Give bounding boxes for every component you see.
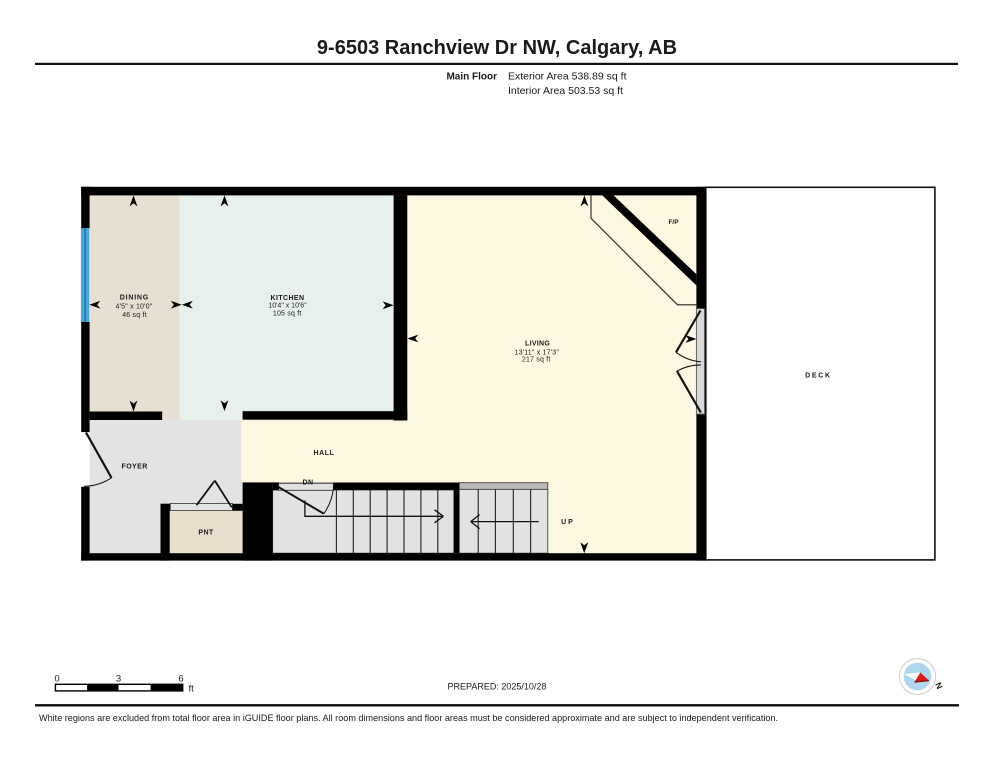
svg-text:46 sq ft: 46 sq ft bbox=[122, 312, 147, 319]
svg-text:DN: DN bbox=[302, 479, 313, 486]
svg-text:4'5" x 10'0": 4'5" x 10'0" bbox=[116, 303, 153, 310]
svg-text:KITCHEN: KITCHEN bbox=[271, 295, 305, 302]
svg-text:HALL: HALL bbox=[313, 450, 334, 457]
svg-text:White regions are excluded fro: White regions are excluded from total fl… bbox=[39, 713, 778, 723]
svg-text:Main Floor: Main Floor bbox=[446, 72, 497, 83]
svg-text:F/P: F/P bbox=[668, 219, 679, 226]
svg-text:217 sq ft: 217 sq ft bbox=[522, 356, 551, 363]
svg-text:3: 3 bbox=[116, 674, 121, 685]
svg-text:FOYER: FOYER bbox=[122, 463, 148, 470]
svg-text:0: 0 bbox=[54, 674, 59, 685]
svg-text:PNT: PNT bbox=[198, 530, 214, 537]
svg-text:DINING: DINING bbox=[120, 295, 149, 302]
svg-text:Exterior Area 538.89 sq ft: Exterior Area 538.89 sq ft bbox=[508, 71, 627, 83]
svg-text:9-6503 Ranchview Dr NW, Calgar: 9-6503 Ranchview Dr NW, Calgary, AB bbox=[317, 37, 677, 59]
svg-text:PREPARED: 2025/10/28: PREPARED: 2025/10/28 bbox=[448, 682, 547, 692]
svg-text:10'4" x 10'6": 10'4" x 10'6" bbox=[268, 303, 307, 310]
svg-text:UP: UP bbox=[561, 519, 575, 526]
svg-text:LIVING: LIVING bbox=[525, 341, 550, 348]
svg-text:DECK: DECK bbox=[805, 373, 832, 380]
svg-text:Interior Area 503.53 sq ft: Interior Area 503.53 sq ft bbox=[508, 85, 623, 97]
svg-text:6: 6 bbox=[178, 674, 183, 685]
svg-text:ft: ft bbox=[189, 684, 195, 695]
svg-text:105 sq ft: 105 sq ft bbox=[273, 311, 302, 318]
